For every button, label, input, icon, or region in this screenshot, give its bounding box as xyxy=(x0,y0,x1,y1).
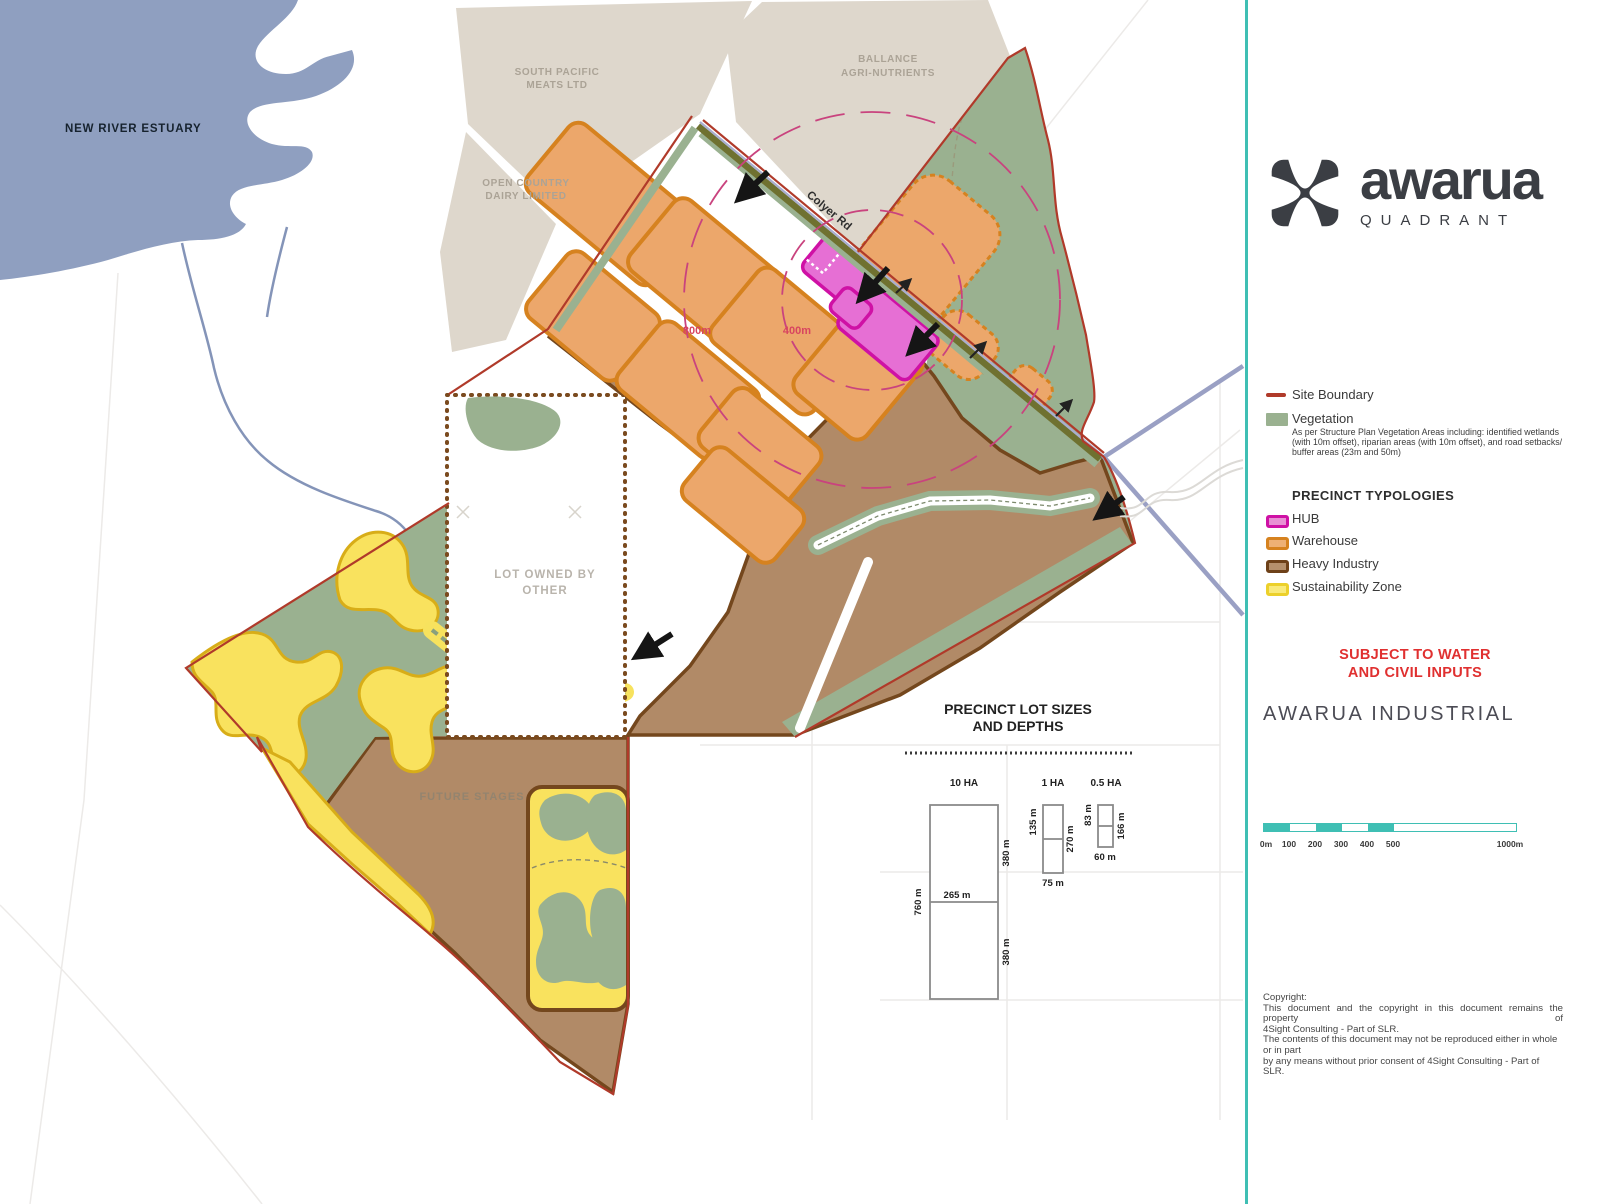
lot-other-label-2: OTHER xyxy=(522,585,567,597)
open-country-label-2: DAIRY LIMITED xyxy=(485,191,566,202)
lot1-height-label: 270 m xyxy=(1065,826,1076,853)
lot1-area-label: 1 HA xyxy=(1042,778,1065,789)
project-title: AWARUA INDUSTRIAL xyxy=(1263,703,1515,726)
site-boundary-swatch xyxy=(1266,393,1286,397)
designation-line xyxy=(1104,366,1243,615)
ballance-label-1: BALLANCE xyxy=(858,54,918,65)
scale-segment xyxy=(1368,824,1394,831)
lot1-depth-top-label: 135 m xyxy=(1028,809,1039,836)
hub-label: HUB xyxy=(1292,511,1319,526)
typologies-heading: PRECINCT TYPOLOGIES xyxy=(1292,488,1454,503)
panel-divider-line xyxy=(1245,0,1248,1204)
copyright-block: Copyright: This document and the copyrig… xyxy=(1263,993,1563,1078)
warning-line-1: SUBJECT TO WATER xyxy=(1295,646,1535,664)
scale-label-1000: 1000m xyxy=(1497,839,1523,849)
lot05-area-label: 0.5 HA xyxy=(1090,778,1121,789)
lot10-depth-top-label: 380 m xyxy=(1001,840,1012,867)
diagram-title-1: PRECINCT LOT SIZES xyxy=(944,701,1092,717)
lot-owned-by-other xyxy=(447,395,625,737)
lot05-height-label: 166 m xyxy=(1116,813,1127,840)
copyright-line: by any means without prior consent of 4S… xyxy=(1263,1057,1563,1078)
scale-label-0: 0m xyxy=(1260,839,1272,849)
heavy-industry-swatch xyxy=(1266,560,1289,573)
logo-text: awarua xyxy=(1360,154,1541,206)
hub-swatch xyxy=(1266,515,1289,528)
estuary-water xyxy=(0,0,354,280)
lot10-height-label: 760 m xyxy=(913,889,924,916)
warning-note: SUBJECT TO WATER AND CIVIL INPUTS xyxy=(1295,646,1535,682)
site-boundary-label: Site Boundary xyxy=(1292,387,1374,402)
copyright-line: The contents of this document may not be… xyxy=(1263,1035,1563,1056)
vegetation-swatch xyxy=(1266,413,1288,426)
scale-label-100: 100 xyxy=(1282,839,1296,849)
heavy-industry-label: Heavy Industry xyxy=(1292,556,1379,571)
logo-wordmark: awarua QUADRANT xyxy=(1360,154,1541,229)
scale-bar xyxy=(1263,823,1517,832)
sustainability-lot-south xyxy=(528,787,628,1010)
scale-label-300: 300 xyxy=(1334,839,1348,849)
sustainability-label: Sustainability Zone xyxy=(1292,579,1402,594)
scale-label-400: 400 xyxy=(1360,839,1374,849)
logo-subtext: QUADRANT xyxy=(1360,212,1541,229)
ballance-label-2: AGRI-NUTRIENTS xyxy=(841,68,935,79)
warehouse-label: Warehouse xyxy=(1292,533,1358,548)
south-pacific-label-1: SOUTH PACIFIC xyxy=(515,67,600,78)
scale-label-500: 500 xyxy=(1386,839,1400,849)
lot10-depth-bottom-label: 380 m xyxy=(1001,939,1012,966)
wetland-lines xyxy=(1120,460,1243,516)
lot05-width-label: 60 m xyxy=(1094,852,1116,863)
vegetation-note-3: buffer areas (23m and 50m) xyxy=(1292,448,1564,458)
lot10-area-label: 10 HA xyxy=(950,778,978,789)
diagram-title-2: AND DEPTHS xyxy=(972,718,1063,734)
lot-other-label-1: LOT OWNED BY xyxy=(494,569,595,581)
copyright-line: This document and the copyright in this … xyxy=(1263,1004,1563,1025)
estuary-label: NEW RIVER ESTUARY xyxy=(65,123,202,135)
future-stages-label: FUTURE STAGES xyxy=(419,791,524,803)
south-pacific-label-2: MEATS LTD xyxy=(526,80,587,91)
radius-800-label: 800m xyxy=(683,325,711,337)
open-country-label-1: OPEN COUNTRY xyxy=(482,178,569,189)
lot05-depth-top-label: 83 m xyxy=(1083,804,1094,826)
radius-400-label: 400m xyxy=(783,325,811,337)
lot10-width-label: 265 m xyxy=(944,890,971,901)
vegetation-label: Vegetation xyxy=(1292,411,1353,426)
scale-segment xyxy=(1316,824,1342,831)
awarua-quadrant-logo: awarua QUADRANT xyxy=(1268,154,1541,232)
warning-line-2: AND CIVIL INPUTS xyxy=(1295,664,1535,682)
scale-segment xyxy=(1264,824,1290,831)
copyright-line: Copyright: xyxy=(1263,993,1563,1004)
lot1-width-label: 75 m xyxy=(1042,878,1064,889)
awarua-structure-plan-page: NEW RIVER ESTUARY SOUTH PACIFIC MEATS LT… xyxy=(0,0,1600,1204)
sustainability-swatch xyxy=(1266,583,1289,596)
awarua-logo-icon xyxy=(1268,154,1342,232)
warehouse-swatch xyxy=(1266,537,1289,550)
scale-label-200: 200 xyxy=(1308,839,1322,849)
